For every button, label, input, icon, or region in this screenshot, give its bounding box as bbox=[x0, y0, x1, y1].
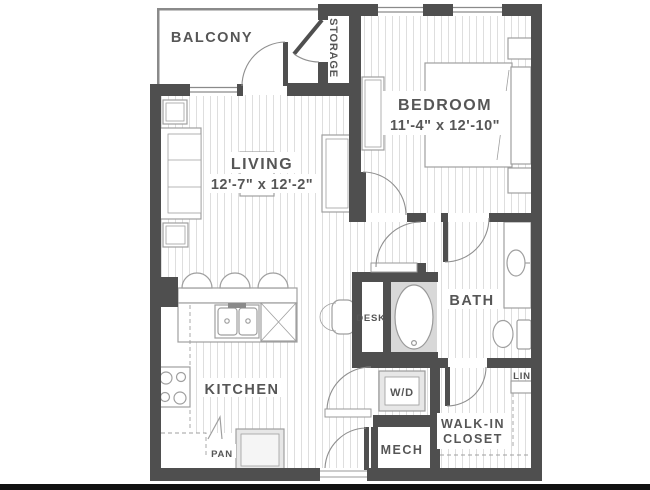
laundry-mech-divider bbox=[373, 415, 430, 427]
armchair bbox=[163, 100, 187, 124]
dresser bbox=[362, 77, 384, 150]
living-label: LIVING bbox=[231, 156, 293, 173]
nightstand-top bbox=[508, 38, 533, 59]
bath-sink bbox=[507, 250, 525, 276]
closet-top-wall-b bbox=[487, 358, 533, 368]
bottom-bar bbox=[0, 484, 650, 490]
bedroom-window-right bbox=[453, 4, 502, 16]
bathtub bbox=[391, 282, 437, 352]
faucet bbox=[228, 303, 246, 308]
storage-left-wall-b bbox=[318, 62, 328, 96]
balcony-left-wall bbox=[157, 8, 160, 86]
bottom-wall-right bbox=[367, 468, 542, 481]
floorplan-screenshot: BALCONY STORAGE BEDROOM 11'-4" x 12'-10"… bbox=[0, 0, 650, 490]
storage-left-wall-a bbox=[318, 8, 328, 20]
bath-vanity bbox=[504, 222, 531, 308]
side-table bbox=[163, 223, 188, 247]
desk-label: DESK bbox=[356, 313, 386, 324]
mech-label: MECH bbox=[381, 443, 424, 457]
living-dims: 12'-7" x 12'-2" bbox=[211, 177, 313, 193]
bedroom-bottom-wall-b bbox=[489, 213, 531, 222]
mech-left-wall bbox=[371, 427, 378, 468]
living-window bbox=[190, 84, 237, 96]
storage-door bbox=[294, 20, 322, 62]
closet-label-line2: CLOSET bbox=[443, 432, 503, 446]
bottom-wall-left bbox=[150, 468, 320, 481]
storage-label: STORAGE bbox=[327, 18, 339, 78]
stove bbox=[157, 367, 190, 407]
right-wall bbox=[531, 4, 542, 481]
bedroom-dims: 11'-4" x 12'-10" bbox=[390, 118, 500, 134]
bedroom-bottom-wall-a bbox=[407, 213, 426, 222]
closet-top-wall-a bbox=[430, 358, 448, 368]
nightstand-bottom bbox=[508, 168, 533, 193]
vestibule-door-cap bbox=[417, 263, 426, 273]
dishwasher bbox=[261, 303, 296, 341]
laundry-label: W/D bbox=[390, 387, 414, 399]
balcony-label: BALCONY bbox=[171, 30, 253, 46]
bedroom-door-jamb bbox=[361, 213, 366, 222]
kitchen-island bbox=[178, 288, 297, 342]
kitchen-column bbox=[150, 277, 178, 307]
pantry-label: PAN bbox=[211, 449, 233, 460]
bath-bottom-wall bbox=[352, 352, 438, 368]
entry-threshold bbox=[320, 471, 367, 477]
balcony-door bbox=[242, 42, 288, 86]
living-top-wall-a bbox=[150, 84, 190, 96]
linen-label: LIN bbox=[513, 371, 531, 382]
floorplan-svg: BALCONY STORAGE BEDROOM 11'-4" x 12'-10"… bbox=[0, 0, 650, 490]
sofa bbox=[160, 128, 201, 219]
bedroom-label: BEDROOM bbox=[398, 97, 492, 114]
fridge bbox=[236, 429, 284, 470]
kitchen-label: KITCHEN bbox=[205, 382, 280, 398]
tv-console bbox=[322, 135, 352, 212]
bedroom-window-left bbox=[378, 4, 423, 16]
bedroom-divider-wall bbox=[349, 4, 361, 222]
closet-label-line1: WALK-IN bbox=[441, 417, 505, 431]
balcony-top-wall bbox=[157, 8, 318, 11]
bath-label: BATH bbox=[449, 293, 494, 309]
nook-top-wall bbox=[352, 272, 438, 282]
bar-stools bbox=[182, 273, 288, 288]
